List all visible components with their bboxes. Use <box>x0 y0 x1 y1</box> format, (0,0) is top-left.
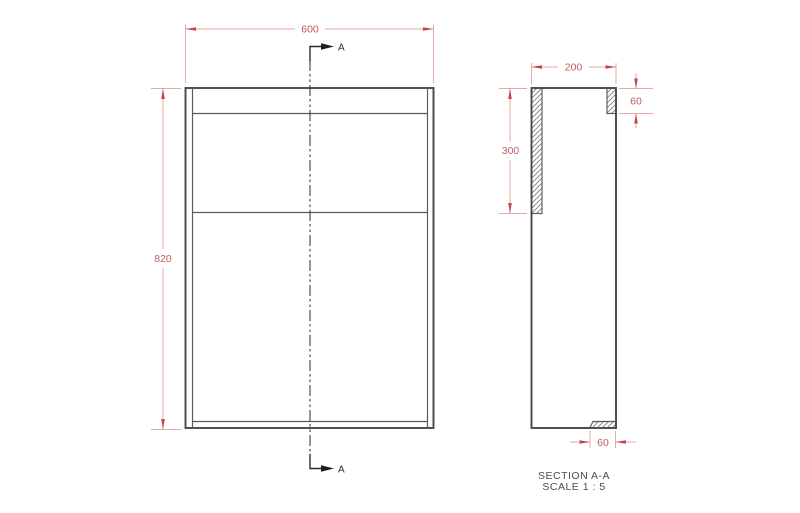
section-view-body <box>532 88 617 428</box>
section-back-panel-hatch <box>532 88 543 214</box>
dim-60-top-value: 60 <box>630 96 642 108</box>
section-caption-scale: SCALE 1 : 5 <box>542 481 605 493</box>
cut-label-bottom: A <box>338 465 345 476</box>
section-bottom-rail-hatch <box>590 422 616 428</box>
section-top-rail-hatch <box>607 88 616 114</box>
dim-600-value: 600 <box>301 24 319 36</box>
technical-drawing-canvas: A A 600 820 <box>0 0 800 513</box>
section-caption: SECTION A-A SCALE 1 : 5 <box>538 470 610 493</box>
dim-820-value: 820 <box>154 253 172 265</box>
dim-300-value: 300 <box>502 145 520 157</box>
dim-60-bottom-value: 60 <box>597 437 609 449</box>
cut-label-top: A <box>338 43 345 54</box>
dim-200-value: 200 <box>565 62 583 74</box>
section-view <box>532 88 617 428</box>
